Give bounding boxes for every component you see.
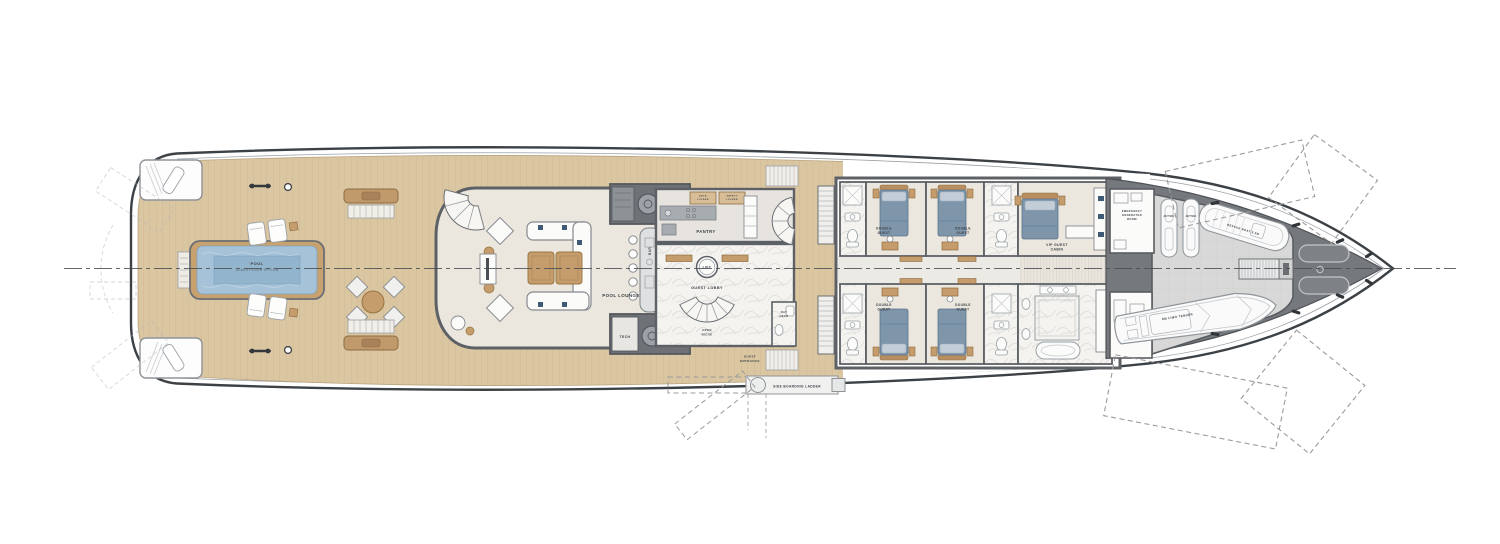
pool-lounge-label: POOL LOUNGE	[602, 293, 640, 298]
jetski-1	[1161, 199, 1177, 257]
garage-stairs	[1239, 259, 1293, 279]
yacht-deck-plan: RESCUE BOAT 5.5M 8M LIMO TENDER	[0, 0, 1500, 544]
bathtub	[1036, 342, 1080, 359]
svg-text:CABIN: CABIN	[1051, 248, 1064, 252]
corridor-console	[958, 279, 976, 284]
deck-locker-label: DECK	[699, 196, 707, 198]
pool-sublabel: GLASS FLOOR OPTION	[236, 268, 279, 272]
double-guest-label-4: DOUBLE	[955, 303, 971, 307]
svg-text:GENERATOR: GENERATOR	[1122, 213, 1142, 217]
guest-lobby-label: GUEST LOBBY	[691, 286, 723, 290]
cabin-block	[836, 178, 1120, 368]
pouf-chair	[451, 316, 465, 330]
vip-bed	[1015, 193, 1065, 239]
toilet	[1022, 299, 1030, 310]
stair-flight-down	[818, 296, 834, 354]
lobby-sideboard-2	[722, 255, 748, 262]
corridor-console	[900, 257, 922, 262]
corridor-console	[958, 257, 976, 262]
round-table	[362, 291, 384, 313]
day-head-label2: HEAD	[780, 314, 789, 318]
double-guest-label-1: DOUBLE	[876, 227, 892, 231]
side-table-2	[484, 283, 494, 293]
pool-label: POOL	[251, 261, 264, 266]
deck-plan-drawing: RESCUE BOAT 5.5M 8M LIMO TENDER	[0, 0, 1500, 544]
deck-locker-label2: LOCKER	[697, 199, 709, 201]
guest-corridor	[838, 256, 1020, 284]
sink	[665, 210, 671, 216]
stair-flight-up	[818, 186, 834, 244]
svg-text:GUEST: GUEST	[878, 308, 891, 312]
jetski-2	[1183, 199, 1199, 257]
pantry-cabinet	[744, 196, 757, 238]
lobby-sideboard-1	[666, 255, 692, 262]
toilet	[775, 325, 783, 336]
vip-corridor	[1020, 256, 1114, 284]
vip-bench	[1066, 226, 1094, 238]
jetski-label-1: JETSKI	[1163, 215, 1174, 218]
guest-entrance-label2: ENTRANCE	[740, 359, 760, 363]
double-guest-label-3: DOUBLE	[876, 303, 892, 307]
tech-room	[612, 317, 638, 351]
guest-entrance-label: GUEST	[744, 355, 756, 359]
bar-label: BAR	[648, 247, 652, 255]
emergency-generator-label: EMERGENCY	[1122, 209, 1142, 213]
corridor-console	[900, 279, 922, 284]
tv-screen	[486, 258, 489, 280]
emergency-generator-room	[1110, 189, 1154, 253]
day-head-label: DAY	[781, 310, 787, 314]
open-niche-label2: NICHE	[702, 333, 713, 337]
jetski-label-2: JETSKI	[1185, 215, 1196, 218]
safety-locker-label2: LOCKER	[726, 199, 738, 201]
svg-text:GUEST: GUEST	[957, 231, 970, 235]
svg-text:GUEST: GUEST	[957, 308, 970, 312]
lift-label: LIFT	[703, 266, 712, 270]
double-guest-label-2: DOUBLE	[955, 227, 971, 231]
stairs-port	[348, 205, 394, 218]
vip-vanity	[1040, 286, 1076, 294]
open-niche-label: OPEN	[702, 328, 712, 332]
tech-label: TECH	[620, 335, 631, 339]
safety-locker-label: SAFETY	[726, 195, 737, 198]
side-boarding-ladder-label: SIDE BOARDING LADDER	[773, 385, 821, 389]
pantry-label: PANTRY	[696, 229, 715, 234]
svg-text:GUEST: GUEST	[878, 231, 891, 235]
svg-text:ROOM: ROOM	[1127, 217, 1137, 221]
vip-cabin-label: VIP GUEST	[1046, 243, 1068, 247]
bow-seat-pad-2	[1299, 277, 1349, 294]
side-steps-starboard	[766, 350, 798, 370]
bow-seat-pad-1	[1299, 245, 1349, 262]
stairs-starboard	[348, 320, 394, 333]
bidet	[1022, 329, 1030, 340]
side-steps-port	[766, 166, 798, 186]
